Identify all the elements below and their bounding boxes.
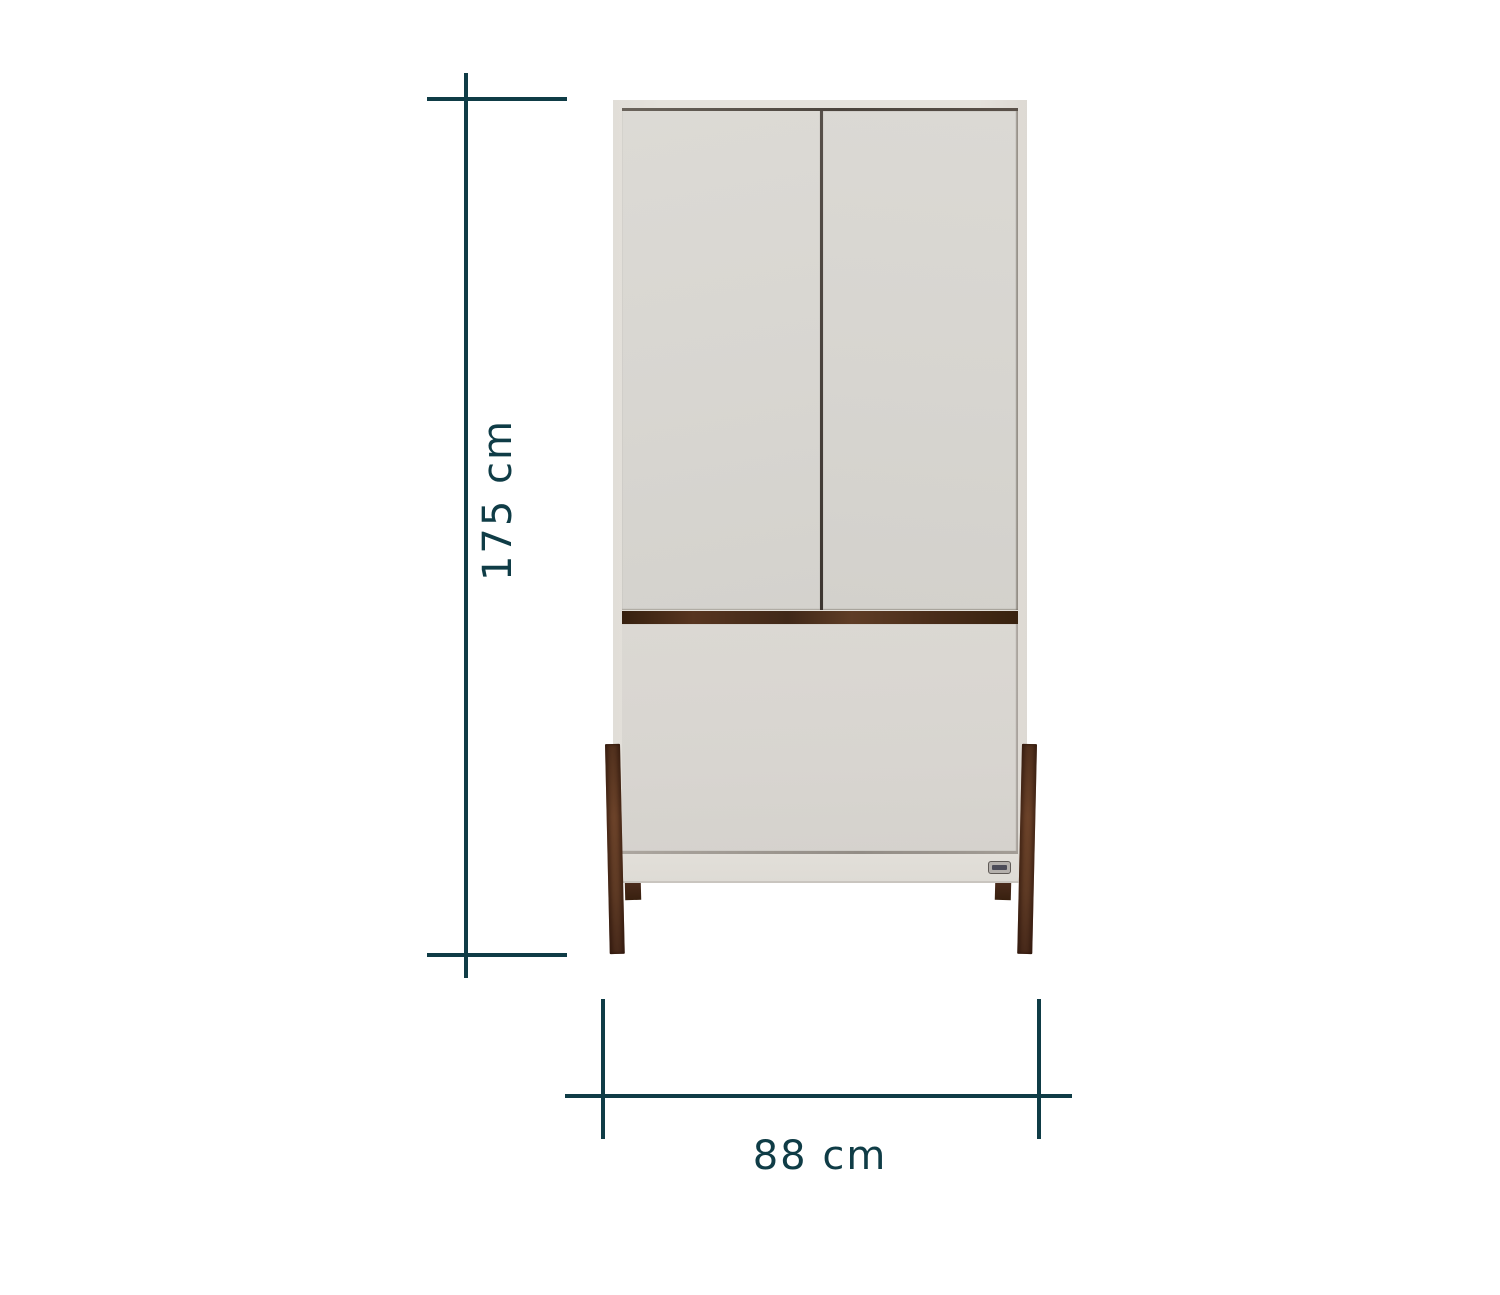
wardrobe-left-door	[622, 111, 820, 610]
wardrobe-inner-foot-right	[995, 882, 1011, 900]
product-dimension-diagram: 175 cm 88 cm	[0, 0, 1500, 1295]
wardrobe-drawer-front	[622, 624, 1018, 851]
wardrobe-plinth	[622, 854, 1018, 883]
height-dimension-line	[464, 73, 468, 978]
wardrobe-right-door	[823, 111, 1018, 610]
height-bottom-tick	[427, 953, 567, 957]
wardrobe-inner-foot-left	[625, 882, 641, 900]
wardrobe-walnut-trim	[622, 611, 1018, 624]
width-dimension-line	[565, 1094, 1072, 1098]
width-left-tick	[601, 999, 605, 1139]
width-right-tick	[1037, 999, 1041, 1139]
wardrobe-body	[613, 100, 1027, 883]
brand-logo-badge	[988, 861, 1011, 874]
brand-logo-icon	[992, 865, 1007, 870]
width-dimension-label: 88 cm	[753, 1136, 888, 1176]
height-top-tick	[427, 97, 567, 101]
height-dimension-label: 175 cm	[478, 419, 518, 581]
